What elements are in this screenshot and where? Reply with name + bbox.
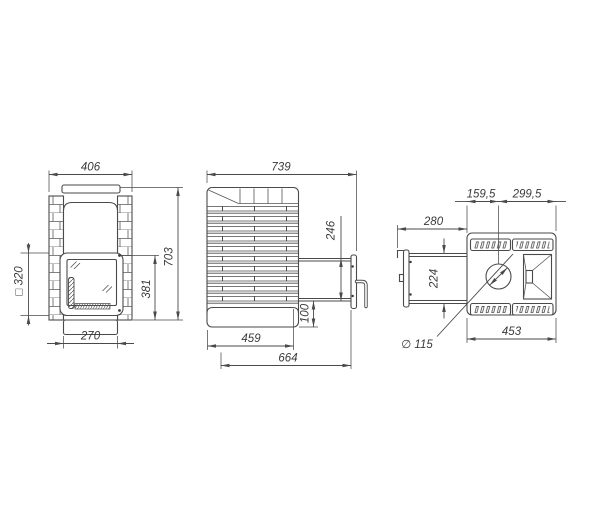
dim-text-299-5: 299,5 — [512, 189, 542, 201]
dim-ref-dot-top — [118, 254, 121, 257]
dim-text-381: 381 — [141, 279, 153, 298]
dim-text-246: 246 — [326, 220, 338, 241]
side-slats — [208, 206, 299, 306]
dim-chimney-offsets: 159,5 299,5 — [455, 189, 566, 234]
dim-base-width-270: 270 — [47, 331, 134, 349]
dim-ref-dot-bottom — [118, 309, 121, 312]
dim-opening-square-320: □ 320 — [14, 243, 50, 326]
dim-text-dia-115: ∅ 115 — [401, 339, 433, 351]
firebox-tunnel-side — [299, 255, 367, 309]
dim-text-159-5: 159,5 — [467, 189, 496, 201]
front-top-plate — [62, 185, 120, 193]
dim-text-270: 270 — [80, 331, 101, 343]
door-handle — [69, 278, 75, 309]
top-view: 159,5 299,5 280 224 ∅ 115 453 — [398, 189, 567, 352]
dim-tunnel-bottom-100: 100 — [299, 301, 318, 327]
dim-text-406: 406 — [81, 162, 101, 174]
dim-tunnel-length-280: 280 — [398, 216, 468, 248]
tunnel-latch-top — [400, 275, 404, 282]
side-view: 739 246 100 459 664 — [207, 162, 366, 370]
tunnel-handle-top — [398, 251, 404, 259]
dim-text-459: 459 — [241, 333, 261, 345]
tunnel-flange-top — [404, 250, 410, 307]
dim-text-320: □ 320 — [14, 266, 26, 296]
dim-text-703: 703 — [164, 247, 176, 267]
stone-funnel — [524, 255, 552, 300]
dim-text-100: 100 — [300, 303, 312, 323]
door-air-grille — [75, 304, 110, 310]
dim-tunnel-width-224: 224 — [429, 239, 445, 319]
stove-technical-drawing: 406 703 381 □ 320 270 — [0, 0, 600, 524]
dim-text-664: 664 — [278, 353, 297, 365]
dim-body-width-453: 453 — [467, 318, 556, 343]
stove-drawing-svg: 406 703 381 □ 320 270 — [0, 0, 600, 524]
front-view: 406 703 381 □ 320 270 — [14, 162, 184, 349]
dim-text-739: 739 — [271, 162, 291, 174]
dim-text-453: 453 — [502, 326, 522, 338]
tunnel-door-handle-side — [357, 282, 367, 307]
dim-text-224: 224 — [429, 269, 441, 289]
dim-text-280: 280 — [423, 216, 444, 228]
